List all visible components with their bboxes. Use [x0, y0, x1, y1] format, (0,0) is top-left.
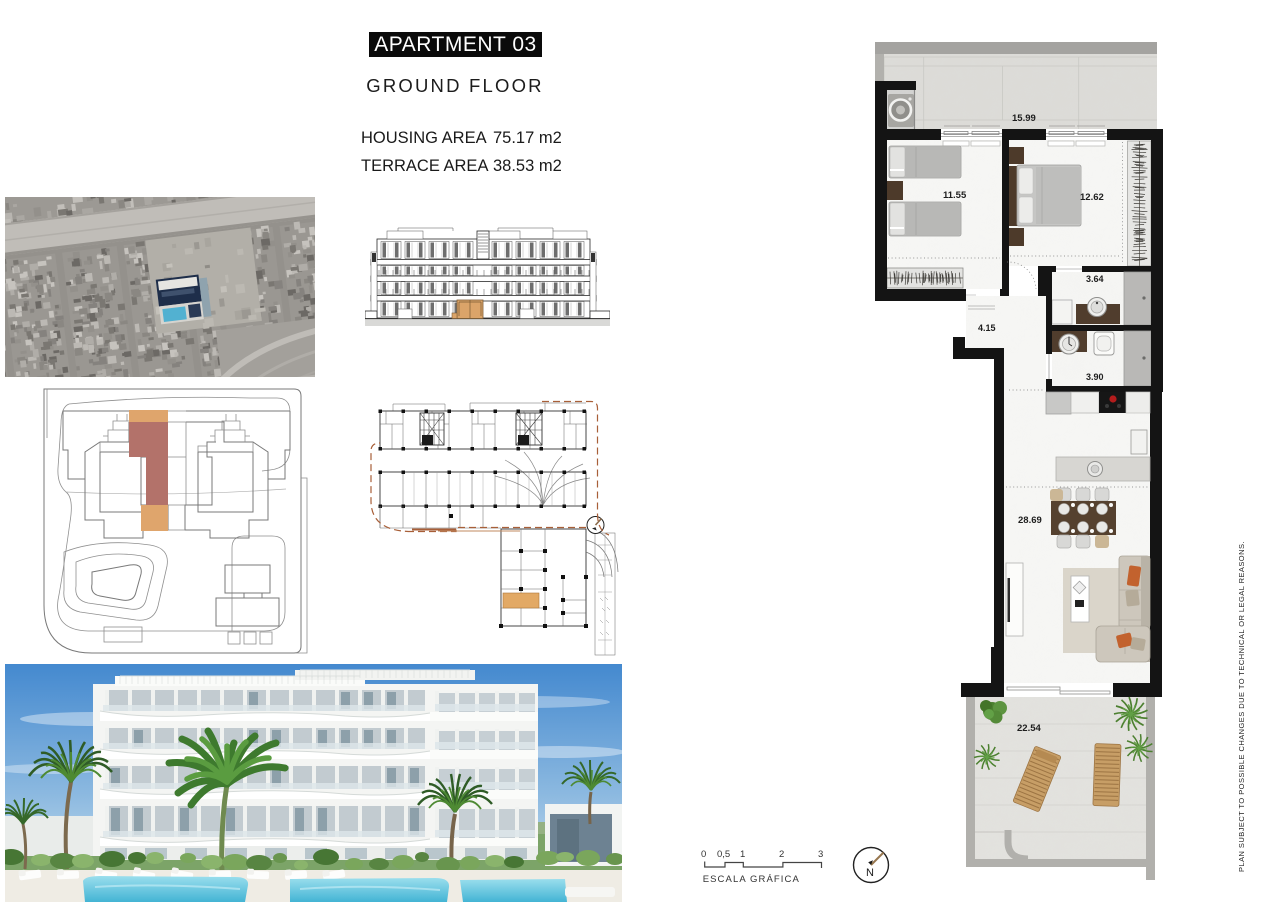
svg-text:0: 0 [701, 849, 706, 860]
svg-text:ESCALA GRÁFICA: ESCALA GRÁFICA [703, 874, 800, 885]
svg-text:1: 1 [740, 849, 745, 860]
svg-text:4.15: 4.15 [978, 323, 996, 333]
svg-text:0,5: 0,5 [717, 849, 730, 860]
svg-text:3: 3 [818, 849, 823, 860]
svg-text:3.90: 3.90 [1086, 372, 1104, 382]
svg-text:28.69: 28.69 [1018, 515, 1042, 526]
svg-text:3.64: 3.64 [1086, 274, 1104, 284]
svg-text:15.99: 15.99 [1012, 113, 1036, 124]
svg-text:12.62: 12.62 [1080, 192, 1104, 203]
svg-text:11.55: 11.55 [943, 190, 967, 201]
svg-text:2: 2 [779, 849, 784, 860]
svg-text:22.54: 22.54 [1017, 723, 1041, 734]
